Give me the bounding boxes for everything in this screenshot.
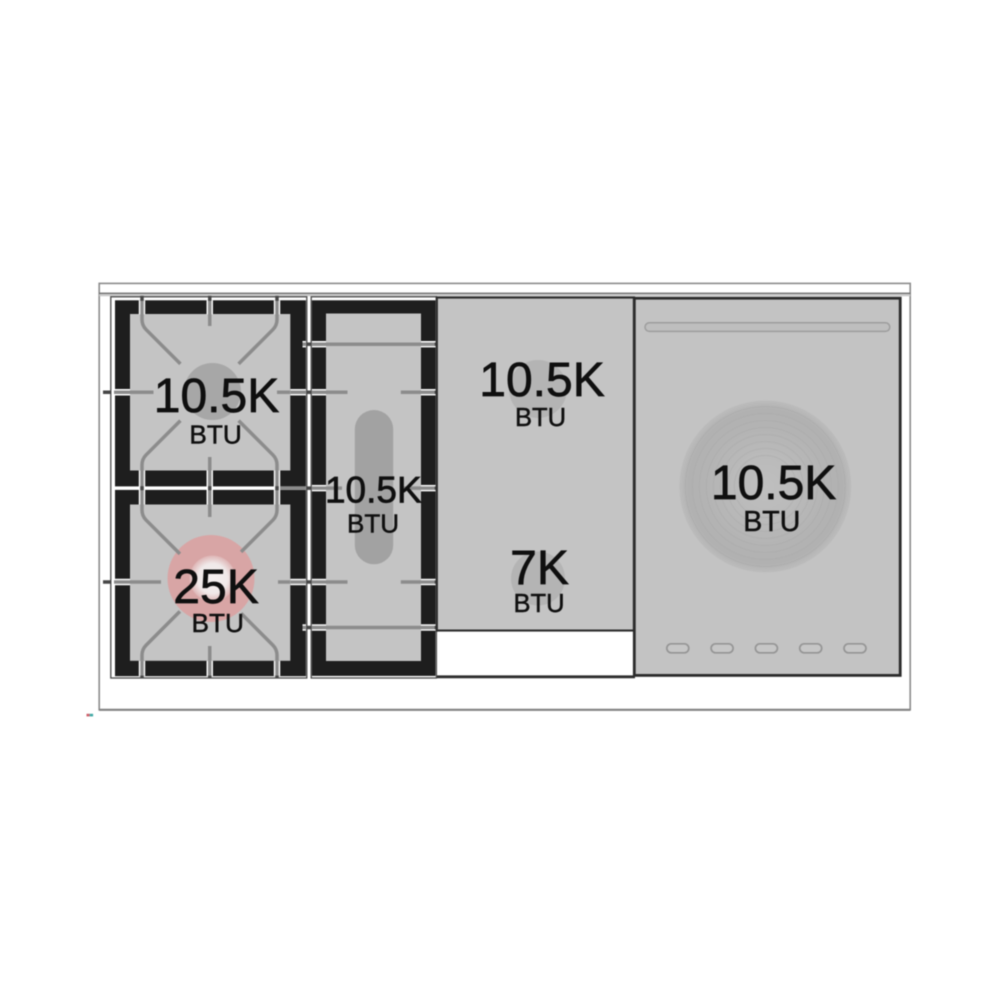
svg-text:10.5K: 10.5K: [711, 457, 836, 510]
svg-text:BTU: BTU: [514, 590, 565, 618]
svg-text:BTU: BTU: [743, 506, 800, 538]
svg-text:10.5K: 10.5K: [154, 370, 279, 423]
svg-text:10.5K: 10.5K: [479, 354, 604, 407]
svg-text:BTU: BTU: [347, 508, 399, 538]
svg-text:BTU: BTU: [192, 608, 244, 638]
svg-text:25K: 25K: [173, 561, 258, 614]
svg-text:BTU: BTU: [515, 404, 566, 432]
svg-text:7K: 7K: [510, 542, 569, 595]
svg-text:BTU: BTU: [189, 420, 241, 450]
svg-text:10.5K: 10.5K: [325, 470, 422, 511]
